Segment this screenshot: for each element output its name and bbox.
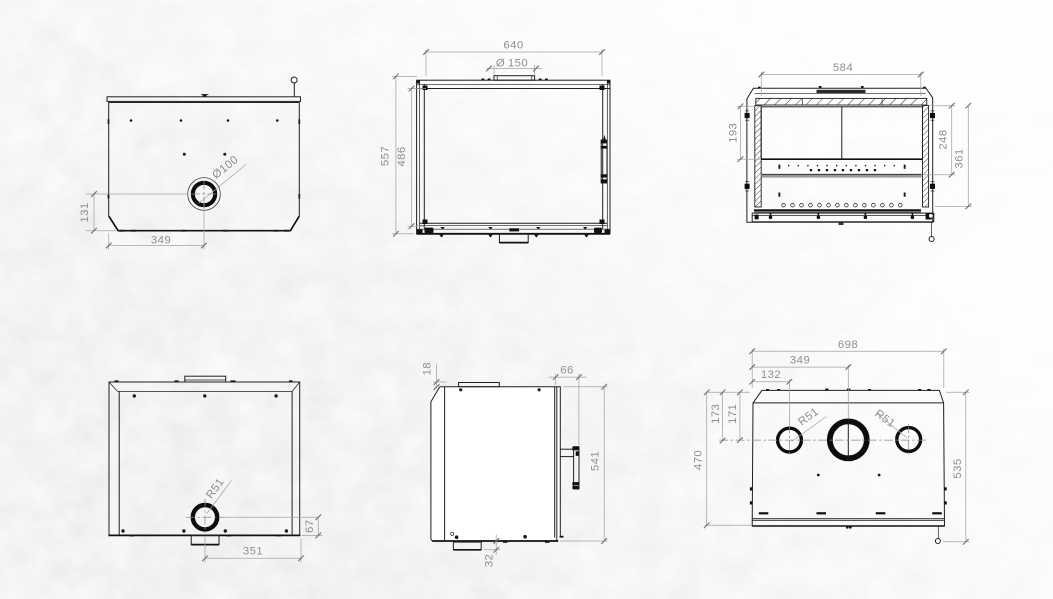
svg-text:541: 541	[590, 451, 602, 471]
svg-text:557: 557	[379, 146, 391, 166]
svg-text:131: 131	[79, 202, 91, 222]
svg-text:584: 584	[833, 62, 853, 74]
svg-text:349: 349	[790, 354, 810, 366]
svg-text:470: 470	[693, 450, 705, 470]
svg-text:32: 32	[484, 554, 496, 567]
svg-text:640: 640	[503, 40, 523, 52]
svg-text:349: 349	[151, 235, 171, 247]
svg-text:67: 67	[304, 520, 316, 533]
svg-text:173: 173	[710, 404, 722, 424]
svg-text:193: 193	[728, 123, 740, 143]
svg-text:361: 361	[953, 148, 965, 168]
svg-text:Ø 150: Ø 150	[496, 58, 528, 70]
svg-text:486: 486	[396, 146, 408, 166]
svg-text:698: 698	[838, 339, 858, 351]
svg-text:535: 535	[952, 458, 964, 478]
svg-text:132: 132	[761, 369, 781, 381]
svg-text:18: 18	[421, 362, 433, 375]
svg-text:351: 351	[243, 546, 263, 558]
svg-text:171: 171	[727, 404, 739, 424]
svg-text:248: 248	[938, 129, 950, 149]
svg-text:66: 66	[560, 364, 573, 376]
